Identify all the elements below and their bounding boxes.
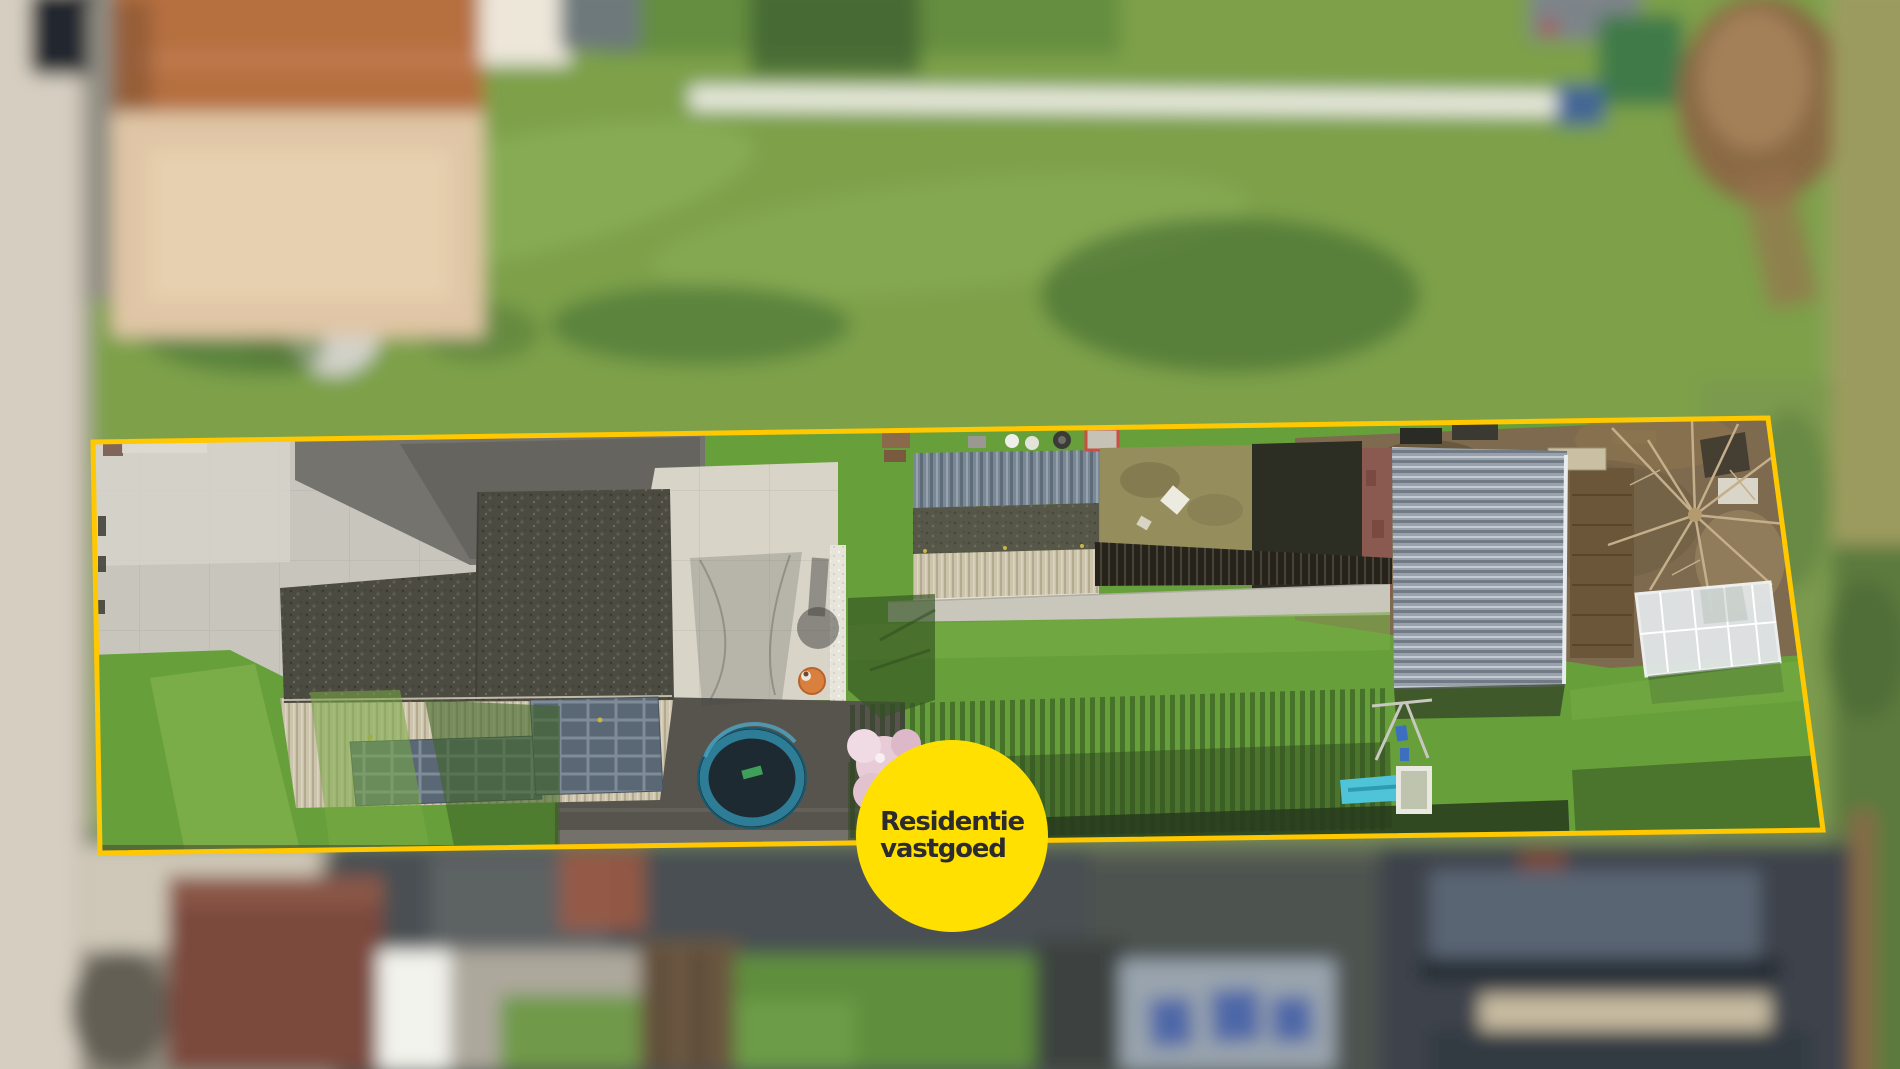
meadow-shadow	[550, 285, 850, 365]
right-lawn-shadow	[1572, 755, 1826, 840]
blossom-dot	[875, 753, 885, 763]
small-table	[968, 436, 986, 448]
person-head	[804, 672, 809, 677]
boundary-post	[98, 556, 106, 572]
white-bin	[1025, 436, 1039, 450]
greenhouse-glass	[1700, 586, 1748, 624]
window	[1271, 996, 1313, 1043]
roof-ridge	[112, 55, 484, 65]
tree-shadow	[848, 594, 935, 718]
swing-seat	[1400, 748, 1409, 761]
gray-roof-building	[560, 0, 640, 50]
brown-roof-ridge	[168, 876, 383, 906]
orange-table	[799, 668, 825, 694]
wood-walkway	[1570, 468, 1634, 658]
corner-slab	[122, 443, 207, 453]
street	[0, 0, 90, 1069]
red-object	[1541, 20, 1557, 36]
dead-tree-core	[1700, 10, 1810, 150]
roof-gable	[112, 0, 152, 120]
moss-dot	[923, 549, 927, 553]
compost-bin	[1400, 428, 1442, 444]
dark-crate	[1700, 432, 1750, 478]
tree-trunk	[1688, 508, 1702, 522]
garage-roof-light	[913, 549, 1099, 600]
window	[1210, 988, 1261, 1042]
fence-post	[655, 950, 663, 1069]
fence-post	[695, 950, 703, 1069]
barn-gutter	[1564, 455, 1566, 684]
brand-name-line2: vastgoed	[880, 836, 1006, 863]
garage-roof-metal	[913, 450, 1099, 508]
terrace-light	[150, 150, 450, 300]
brick-texture	[1372, 520, 1384, 538]
roof-valley	[1420, 958, 1780, 980]
compost-bin	[1452, 424, 1498, 440]
tree-trunk-row	[1850, 810, 1876, 1069]
wood-crate	[884, 450, 906, 462]
window	[1149, 997, 1193, 1047]
moss-dot	[1003, 546, 1007, 550]
green-structure	[1598, 15, 1683, 105]
meadow-shadow	[1040, 217, 1420, 373]
hose-coil-center	[1058, 436, 1066, 444]
white-building	[480, 0, 570, 65]
bottom-green-patch	[500, 995, 645, 1069]
boundary-post	[98, 600, 105, 614]
dark-roof-low	[1430, 1030, 1810, 1069]
hedge-top	[750, 0, 920, 75]
driveway-light	[90, 438, 290, 566]
aerial-photo: Residentie vastgoed	[0, 0, 1900, 1069]
corner-brick	[103, 444, 123, 456]
moss-dot	[1080, 544, 1084, 548]
right-olive-field	[1832, 0, 1900, 555]
chimney	[1520, 850, 1565, 870]
bottom-lawn-light	[735, 1000, 855, 1069]
beige-strip	[1480, 995, 1770, 1033]
brick-texture	[1366, 470, 1376, 486]
moss-dot	[598, 718, 603, 723]
blue-object	[1556, 85, 1604, 125]
brand-badge: Residentie vastgoed	[856, 740, 1048, 932]
brand-badge-text: Residentie vastgoed	[880, 809, 1024, 863]
white-patch	[378, 950, 453, 1069]
red-tile-roof	[560, 850, 645, 930]
shadow-blob	[70, 950, 170, 1069]
boundary-post	[98, 516, 106, 536]
white-bin	[1005, 434, 1019, 448]
grass-patch-dark	[1187, 494, 1243, 526]
planter-soil	[1401, 771, 1427, 809]
dark-gap	[1035, 940, 1125, 1069]
barn-metal-roof	[1392, 447, 1567, 690]
wood-crate	[882, 432, 910, 448]
swing-seat	[1395, 725, 1408, 741]
brand-name-line1: Residentie	[880, 809, 1024, 836]
sandbox	[1086, 429, 1118, 450]
